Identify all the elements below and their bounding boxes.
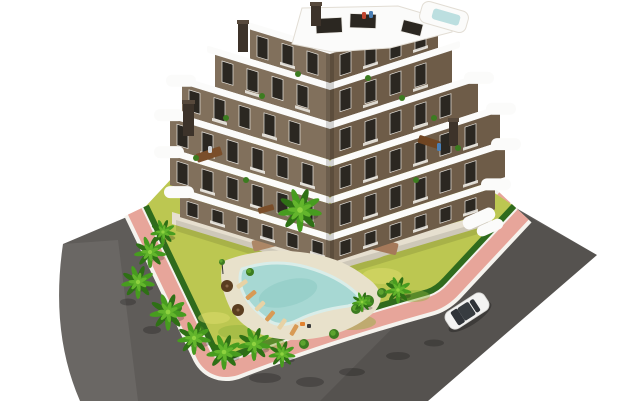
- balcony-cap: [491, 138, 521, 150]
- terrace-furniture: [437, 143, 441, 151]
- window: [187, 201, 198, 218]
- chimney: [449, 118, 458, 146]
- window: [365, 118, 376, 143]
- tree-shadow: [424, 340, 444, 347]
- balcony-plant: [295, 71, 301, 77]
- window: [237, 217, 248, 234]
- balcony-plant: [413, 177, 419, 183]
- window: [340, 87, 351, 112]
- lawn-patch: [198, 312, 230, 324]
- render-image: [0, 0, 630, 401]
- tree-shadow: [249, 373, 281, 383]
- parasol-top: [237, 309, 240, 312]
- window: [365, 79, 376, 104]
- window: [289, 120, 300, 144]
- palm-core: [166, 310, 171, 315]
- window: [247, 69, 258, 93]
- palm-core: [222, 350, 227, 355]
- garden-bush-highlight: [378, 289, 384, 295]
- chimney: [238, 20, 248, 52]
- terrace-furniture: [362, 12, 366, 19]
- palm-core: [361, 301, 364, 304]
- palm-core: [297, 207, 303, 213]
- parasol-top: [226, 285, 229, 288]
- balcony-plant: [259, 93, 265, 99]
- palm-core: [136, 280, 140, 284]
- tree-shadow: [339, 368, 365, 376]
- window: [264, 113, 275, 137]
- terrace-furniture: [369, 11, 373, 18]
- window: [307, 51, 318, 75]
- tree-shadow: [386, 352, 410, 360]
- window: [340, 164, 351, 189]
- balcony-plant: [455, 145, 461, 151]
- window: [227, 140, 238, 164]
- chimney-cap: [237, 20, 249, 24]
- window: [272, 76, 283, 100]
- window: [415, 102, 426, 127]
- poolside-item: [307, 324, 311, 328]
- tree-shadow: [120, 299, 136, 306]
- balcony-cap: [154, 146, 184, 158]
- window: [340, 51, 351, 76]
- palm-core: [396, 288, 400, 292]
- window: [287, 232, 298, 249]
- balcony-cap: [464, 72, 494, 84]
- palm-core: [280, 352, 284, 356]
- palm-core: [192, 336, 196, 340]
- balcony-plant: [193, 155, 199, 161]
- garden-bush-highlight: [219, 259, 222, 262]
- window: [415, 63, 426, 88]
- balcony-plant: [399, 95, 405, 101]
- chimney-cap: [310, 2, 322, 6]
- window: [297, 84, 308, 108]
- window: [440, 169, 451, 194]
- poolside-item: [300, 322, 305, 326]
- window: [390, 185, 401, 210]
- balcony-cap: [154, 109, 184, 121]
- window: [340, 126, 351, 151]
- palm-core: [252, 342, 256, 346]
- chimney: [183, 100, 194, 136]
- window: [227, 177, 238, 201]
- window: [390, 71, 401, 96]
- window: [277, 155, 288, 179]
- palm-core: [148, 250, 152, 254]
- inner-corner-shade: [326, 54, 334, 262]
- balcony-plant: [223, 115, 229, 121]
- balcony-plant: [243, 177, 249, 183]
- window: [257, 36, 268, 60]
- garden-bush-highlight: [300, 340, 306, 346]
- window: [440, 94, 451, 119]
- window: [222, 61, 233, 85]
- tree-shadow: [296, 377, 324, 387]
- window: [239, 105, 250, 129]
- palm-core: [161, 230, 164, 233]
- balcony-plant: [431, 115, 437, 121]
- garden-bush-highlight: [330, 330, 336, 336]
- balcony-cap: [486, 103, 516, 115]
- balcony-cap: [481, 178, 511, 190]
- architectural-render: [0, 0, 630, 401]
- garden-bush-highlight: [247, 269, 251, 273]
- window: [340, 201, 351, 226]
- tree-shadow: [143, 326, 161, 334]
- balcony-cap: [164, 186, 194, 198]
- window: [177, 161, 188, 185]
- window: [390, 110, 401, 135]
- window: [390, 148, 401, 173]
- balcony-plant: [365, 75, 371, 81]
- chimney-cap: [448, 118, 459, 122]
- chimney-cap: [182, 100, 195, 104]
- balcony-cap: [166, 75, 196, 87]
- terrace-furniture: [208, 146, 212, 153]
